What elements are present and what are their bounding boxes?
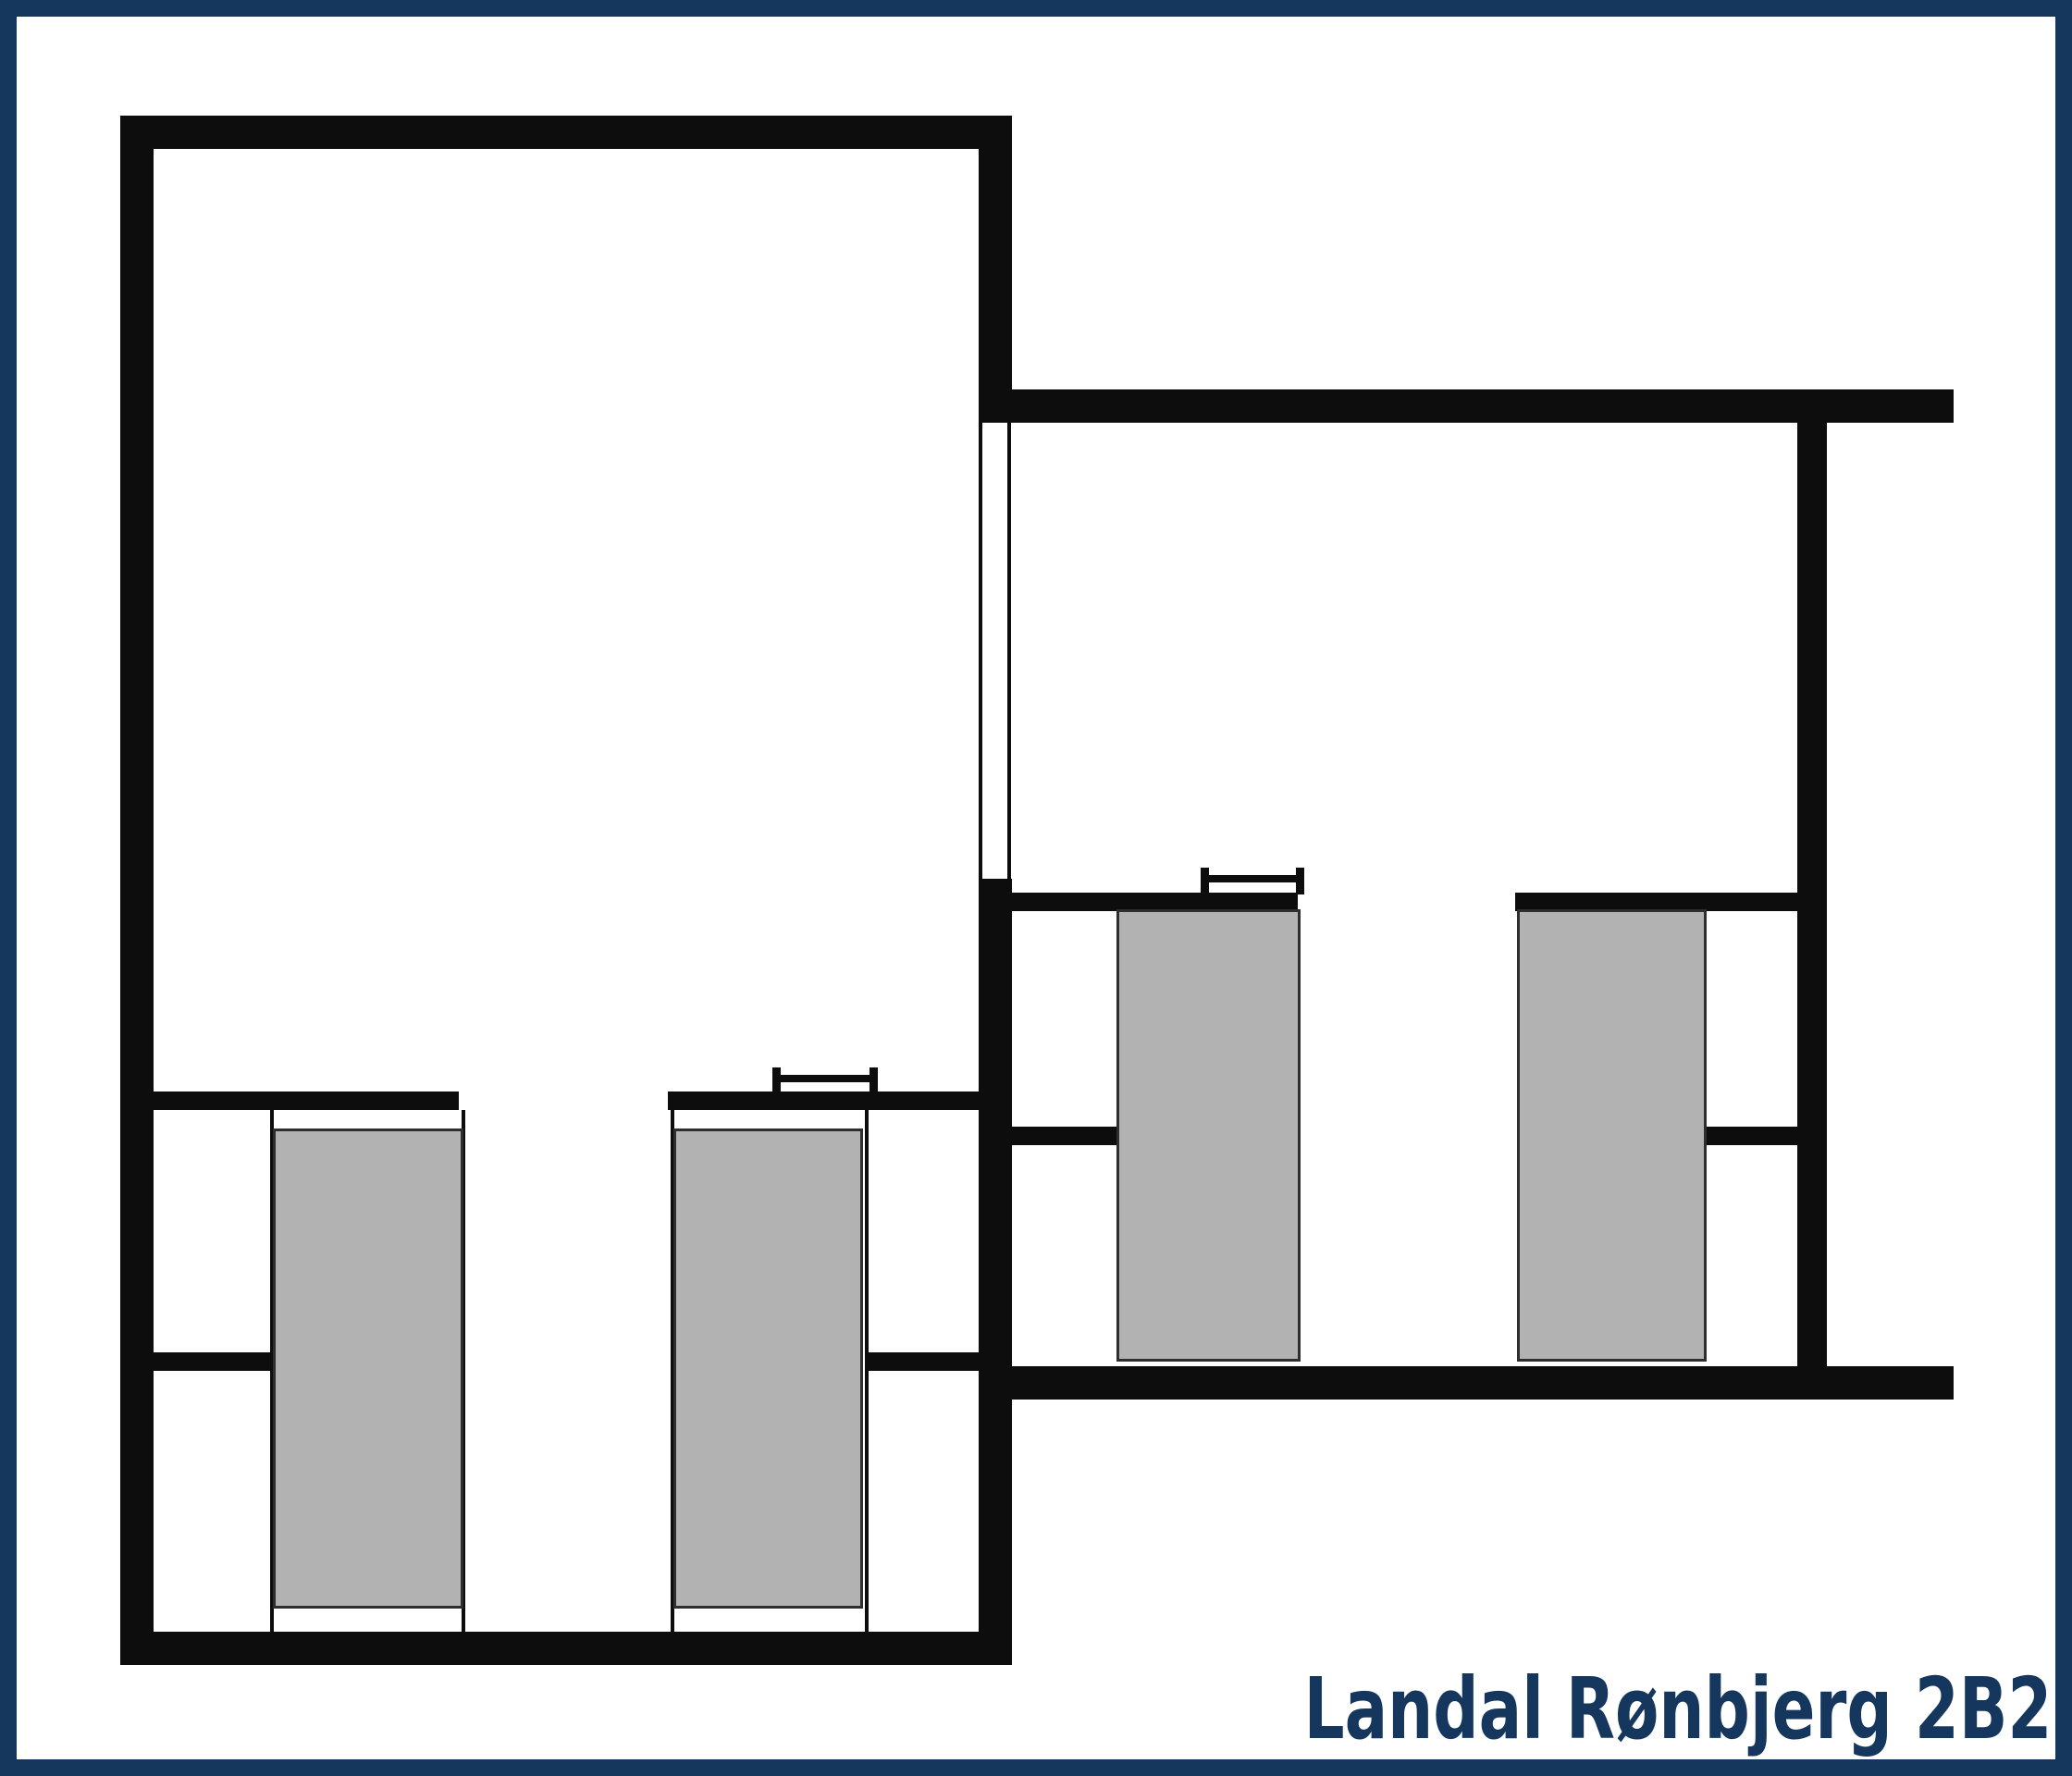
left-section-north-wall — [120, 116, 1011, 149]
left-bedroom-closet-stub-west — [154, 1352, 270, 1371]
window-line-east — [1007, 423, 1011, 881]
left-section-east-wall-upper — [979, 116, 1012, 423]
right-section-north-wall — [979, 389, 1954, 423]
bed-mattress-left1 — [273, 1128, 463, 1609]
window-line-west — [979, 423, 982, 881]
bed-mattress-right2 — [1517, 909, 1707, 1362]
floorplan-page: Landal Rønbjerg 2B2 — [0, 0, 2072, 1776]
left-bedroom-top-wall-west — [154, 1091, 459, 1110]
right-section-east-wall — [1797, 423, 1827, 1366]
right-section-south-wall — [979, 1366, 1954, 1400]
right-bedroom-top-wall-east — [1515, 893, 1797, 911]
plan-title: Landal Rønbjerg 2B2 — [1303, 1667, 2052, 1752]
left-section-south-wall — [120, 1632, 1011, 1665]
ladder-right-bar — [1201, 875, 1304, 882]
left-bedroom-closet-stub-east — [869, 1352, 979, 1371]
right-bedroom-closet-stub-west — [1009, 1127, 1116, 1145]
bed-frame-left2-east — [865, 1110, 869, 1632]
left-section-east-wall-lower — [979, 879, 1012, 1665]
left-bedroom-top-wall-east — [668, 1091, 979, 1110]
ladder-left-bar — [772, 1075, 878, 1082]
bed-mattress-right1 — [1116, 909, 1301, 1362]
right-bedroom-top-wall-west — [979, 893, 1298, 911]
bed-mattress-left2 — [673, 1128, 863, 1609]
right-bedroom-closet-stub-east — [1707, 1127, 1797, 1145]
left-section-west-wall — [120, 116, 154, 1665]
